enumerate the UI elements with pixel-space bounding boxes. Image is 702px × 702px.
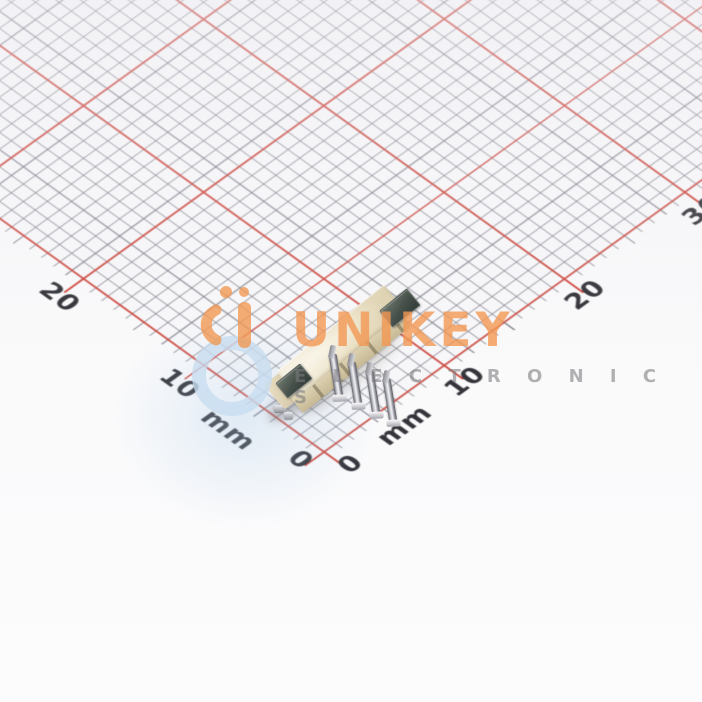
watermark-subtitle-text: E L E C T R O N I C S — [294, 366, 702, 408]
logo-ring-icon — [199, 343, 265, 409]
watermark-brand-text: UNIKEY — [292, 303, 514, 358]
product-photo: 0 mm 10 20 30 0 mm 10 20 — [0, 0, 702, 702]
unikey-logo-icon — [186, 280, 302, 424]
